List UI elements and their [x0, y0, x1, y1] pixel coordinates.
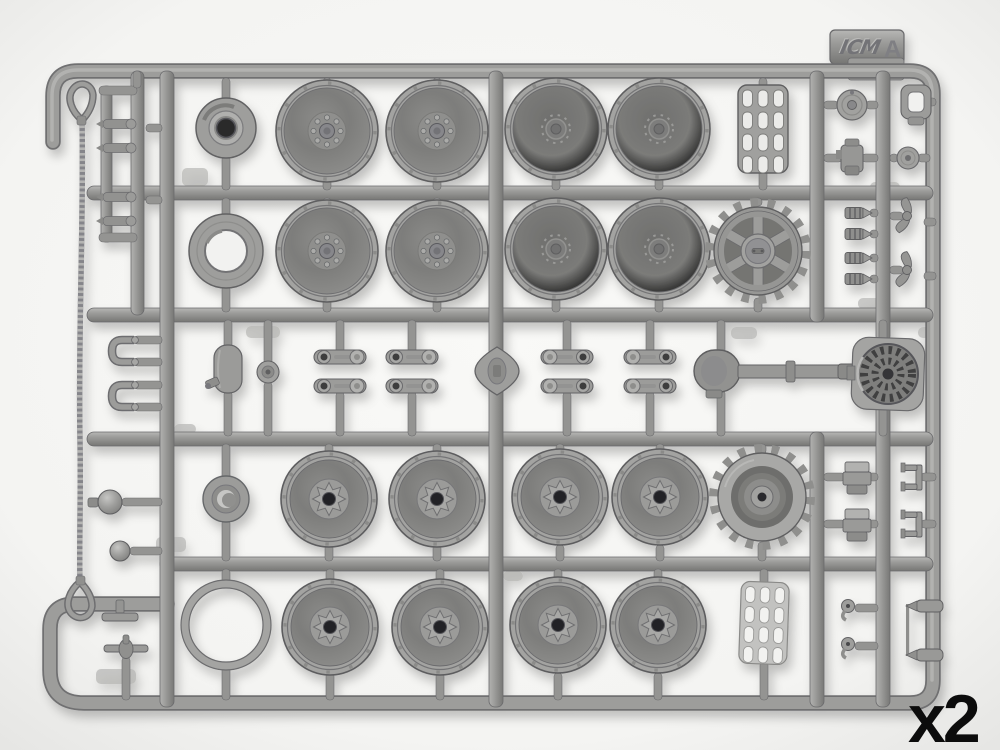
hub-cap-small [203, 476, 249, 522]
road-wheel-outer-bolted [386, 200, 488, 302]
road-wheel-inner-plain [505, 78, 607, 180]
road-wheel-star-hub [282, 579, 378, 675]
sprue-illustration: ICM ICM A [0, 0, 1000, 750]
road-wheel-inner-plain [608, 78, 710, 180]
engine-grille-plate-light [739, 581, 790, 665]
road-wheel-star-hub [610, 577, 706, 673]
road-wheel-star-hub [392, 579, 488, 675]
road-wheel-star-hub [510, 577, 606, 673]
suspension-link-arm [624, 379, 676, 393]
road-wheel-star-hub [512, 449, 608, 545]
road-wheel-star-hub [612, 449, 708, 545]
engine-grille-plate [738, 85, 788, 173]
wheel-ring-spacer [189, 214, 263, 288]
brand-logo: ICM [838, 35, 883, 59]
suspension-link-arm [386, 350, 438, 364]
small-pulley [257, 361, 279, 383]
sprue-photo: ICM ICM A [0, 0, 1000, 750]
box-fitting [843, 509, 871, 541]
sprue-letter: A [884, 36, 901, 63]
road-wheel-inner-plain [608, 198, 710, 300]
road-wheel-outer-bolted [276, 80, 378, 182]
suspension-link-arm [541, 350, 593, 364]
road-wheel-star-hub [281, 451, 377, 547]
quantity-label: x2 [908, 681, 979, 750]
road-wheel-star-hub [389, 451, 485, 547]
suspension-link-arm [541, 379, 593, 393]
hub-cap-large [196, 98, 256, 158]
road-wheel-outer-bolted [386, 80, 488, 182]
road-wheel-inner-plain [505, 198, 607, 300]
suspension-link-arm [314, 379, 366, 393]
cooling-fan [847, 337, 925, 411]
suspension-link-arm [386, 379, 438, 393]
suspension-link-arm [314, 350, 366, 364]
suspension-link-arm [624, 350, 676, 364]
road-wheel-outer-bolted [276, 200, 378, 302]
box-fitting [843, 462, 871, 494]
